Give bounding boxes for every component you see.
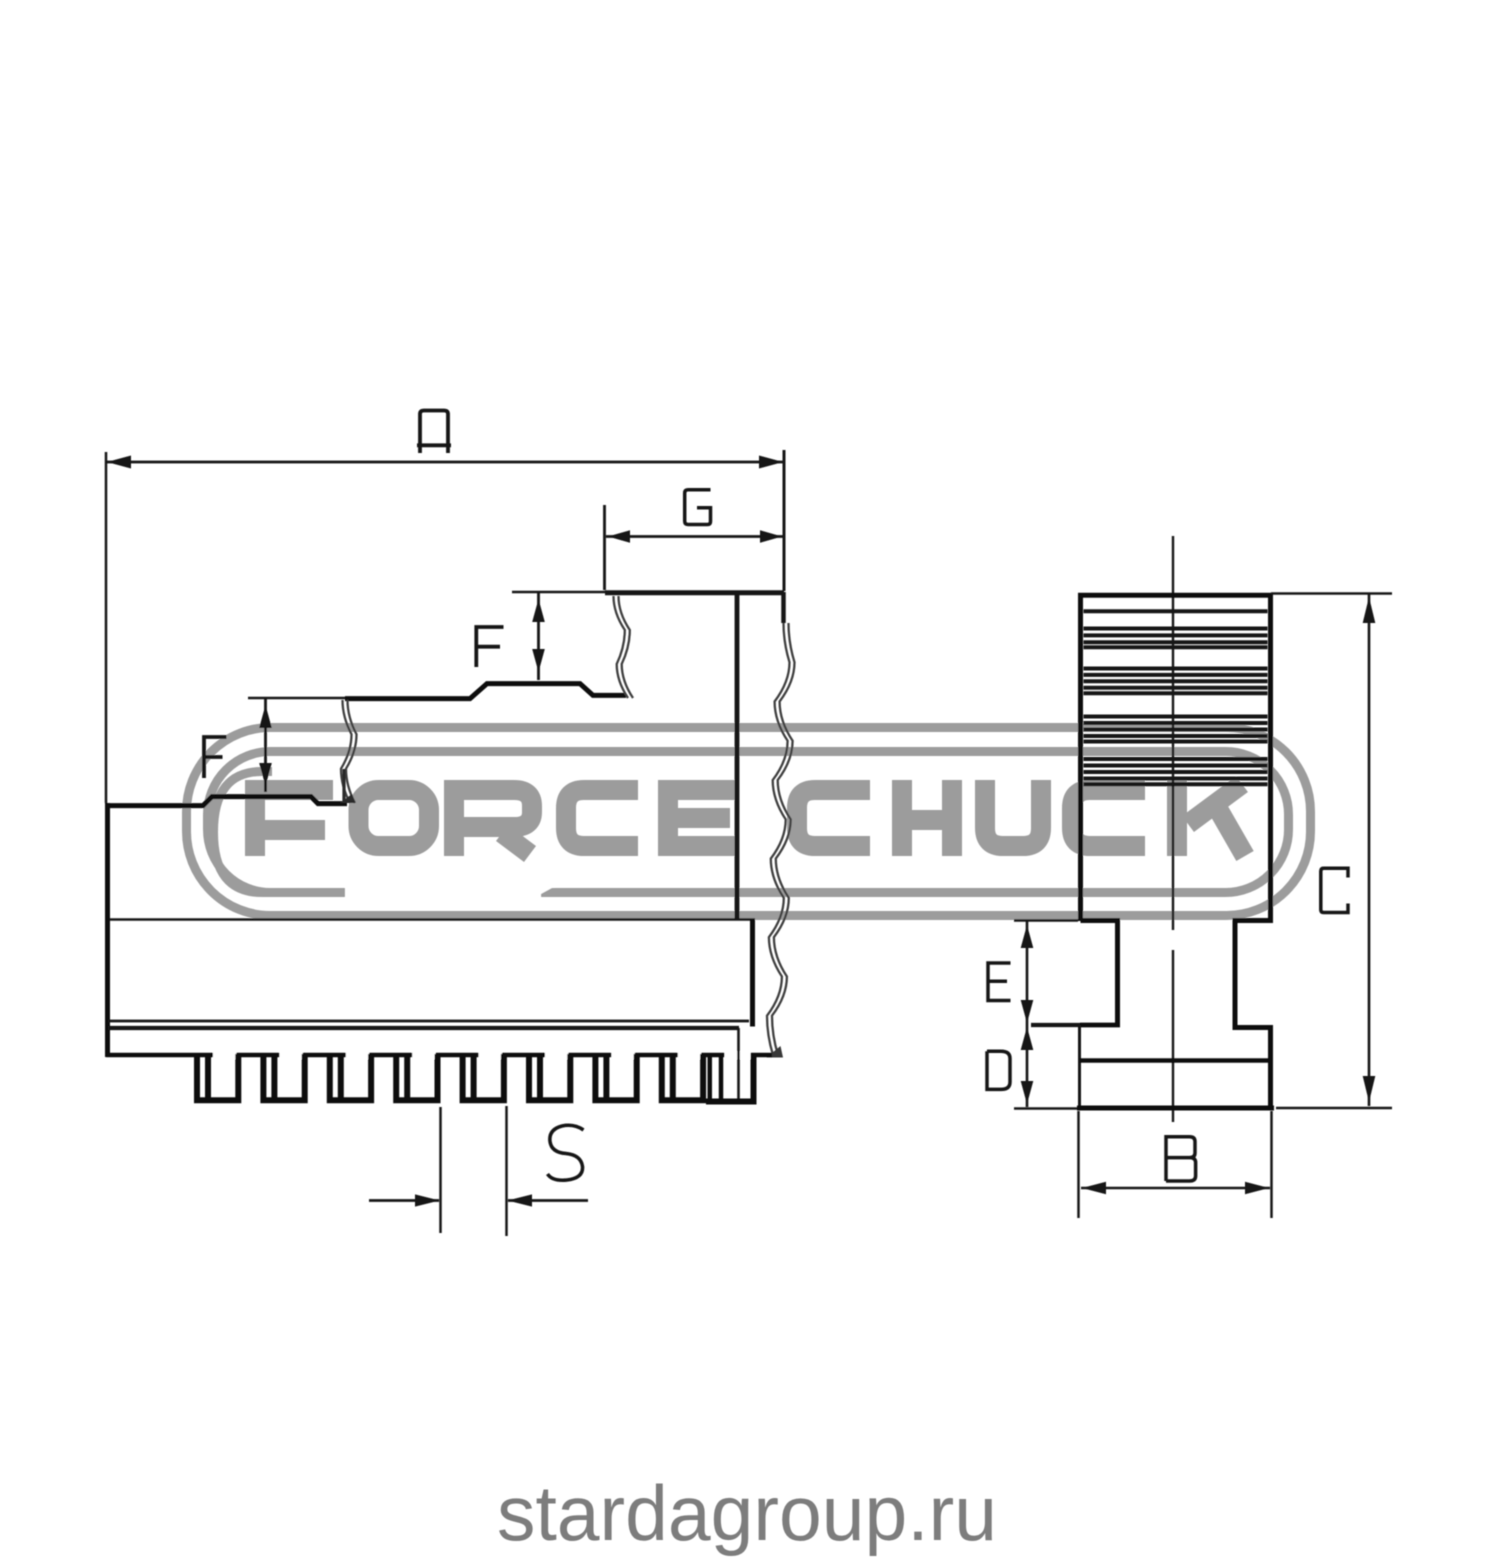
svg-text:stardagroup.ru: stardagroup.ru [497, 1469, 997, 1557]
